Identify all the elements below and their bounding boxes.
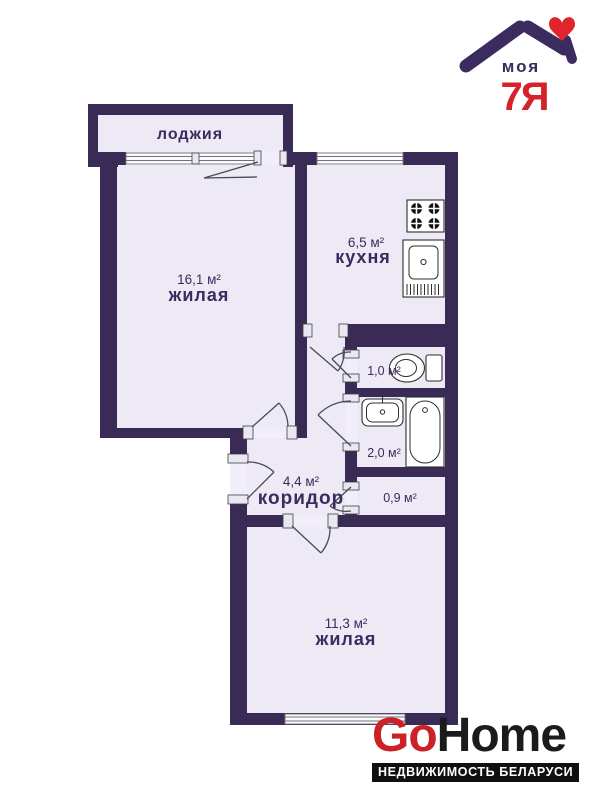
corridor-area: 4,4 м² <box>283 474 320 489</box>
bath-area: 2,0 м² <box>367 446 401 460</box>
living1-label: жилая <box>168 285 230 305</box>
gohome-logo: GoHome НЕДВИЖИМОСТЬ БЕЛАРУСИ <box>372 712 579 782</box>
moya7ya-logo: моя 7Я <box>466 17 575 119</box>
washbasin-icon <box>362 395 403 426</box>
window-living1 <box>126 153 258 164</box>
seven-ya-text: 7Я <box>501 75 548 119</box>
stove-icon <box>407 200 444 232</box>
floorplan-drawing: лоджия 16,1 м² жилая 6,5 м² кухня 1,0 м²… <box>0 0 608 800</box>
gohome-go-text: Go <box>372 709 437 762</box>
wc-area: 1,0 м² <box>367 364 401 378</box>
window-kitchen <box>317 153 403 164</box>
gohome-wordmark: GoHome <box>372 712 579 760</box>
bathtub-icon <box>406 397 444 467</box>
storage-area: 0,9 м² <box>383 491 417 505</box>
corridor-label: коридор <box>258 488 344 509</box>
moya-text: моя <box>502 57 540 76</box>
loggia-label: лоджия <box>157 126 223 143</box>
gohome-tagline: НЕДВИЖИМОСТЬ БЕЛАРУСИ <box>372 763 579 782</box>
gohome-home-text: Home <box>437 709 566 762</box>
kitchen-label: кухня <box>335 247 391 267</box>
kitchen-sink-icon <box>403 240 444 297</box>
floorplan-page: лоджия 16,1 м² жилая 6,5 м² кухня 1,0 м²… <box>0 0 608 800</box>
living2-label: жилая <box>315 629 377 649</box>
